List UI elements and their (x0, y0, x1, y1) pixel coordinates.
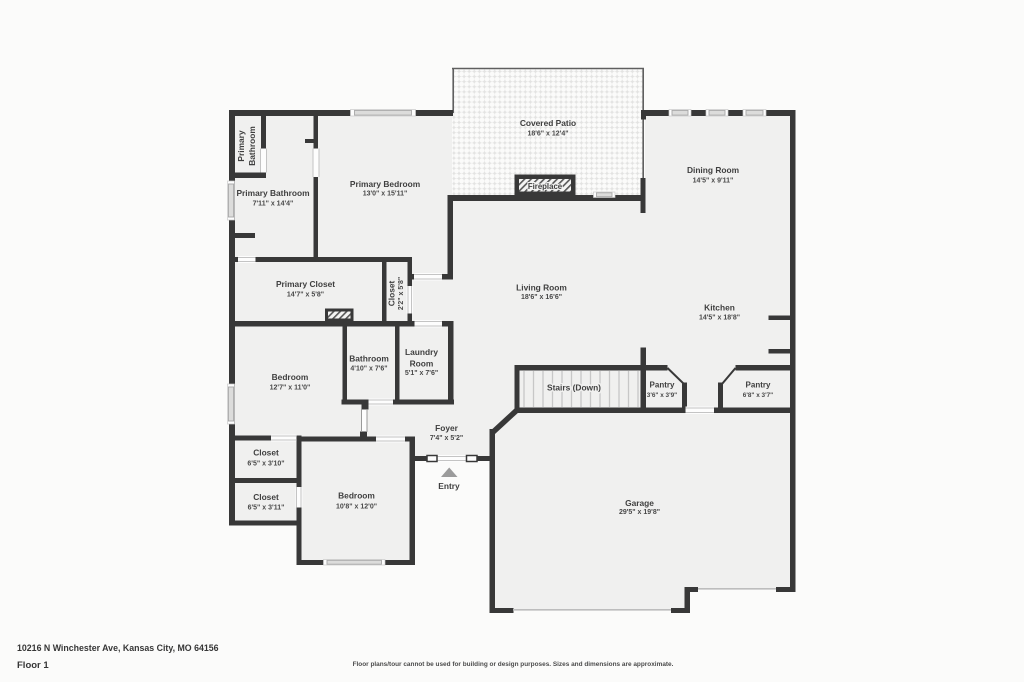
svg-text:7'11" x 14'4": 7'11" x 14'4" (253, 201, 294, 208)
svg-text:6'5" x 3'10": 6'5" x 3'10" (247, 461, 284, 468)
svg-text:Stairs (Down): Stairs (Down) (547, 383, 601, 393)
svg-text:2'2" x 5'8": 2'2" x 5'8" (398, 277, 405, 310)
svg-text:Closet: Closet (387, 280, 397, 306)
svg-text:29'5" x 19'8": 29'5" x 19'8" (619, 509, 660, 516)
svg-text:3'6" x 3'9": 3'6" x 3'9" (647, 392, 677, 399)
svg-text:Room: Room (410, 359, 434, 369)
svg-text:18'6" x 12'4": 18'6" x 12'4" (527, 131, 568, 138)
svg-text:Primary Closet: Primary Closet (276, 279, 335, 289)
svg-text:14'7" x 5'8": 14'7" x 5'8" (287, 292, 324, 299)
svg-text:Covered Patio: Covered Patio (520, 118, 576, 128)
svg-text:13'0" x 15'11": 13'0" x 15'11" (363, 191, 408, 198)
svg-text:Fireplace: Fireplace (528, 182, 563, 191)
svg-text:Dining Room: Dining Room (687, 165, 739, 175)
svg-text:Primary Bedroom: Primary Bedroom (350, 179, 420, 189)
svg-text:Garage: Garage (625, 498, 654, 508)
svg-text:Floor 1: Floor 1 (17, 660, 49, 671)
svg-text:Pantry: Pantry (650, 381, 675, 390)
svg-text:Kitchen: Kitchen (704, 303, 735, 313)
svg-text:Floor plans/tour cannot be use: Floor plans/tour cannot be used for buil… (353, 661, 674, 668)
svg-text:14'5" x 9'11": 14'5" x 9'11" (693, 178, 734, 185)
svg-text:Foyer: Foyer (435, 423, 459, 433)
svg-text:6'5" x 3'11": 6'5" x 3'11" (248, 505, 285, 512)
svg-text:6'8" x 3'7": 6'8" x 3'7" (743, 392, 773, 399)
svg-text:Bedroom: Bedroom (338, 491, 375, 501)
svg-text:5'1" x 7'6": 5'1" x 7'6" (405, 370, 438, 377)
svg-text:14'5" x 18'8": 14'5" x 18'8" (699, 315, 740, 322)
svg-text:Closet: Closet (253, 448, 279, 458)
svg-text:Living Room: Living Room (516, 283, 567, 293)
svg-text:Entry: Entry (438, 481, 460, 491)
svg-text:10216 N Winchester Ave, Kansas: 10216 N Winchester Ave, Kansas City, MO … (17, 643, 219, 653)
svg-text:7'4" x 5'2": 7'4" x 5'2" (430, 435, 463, 442)
svg-text:10'8" x 12'0": 10'8" x 12'0" (336, 504, 377, 511)
svg-text:Laundry: Laundry (405, 347, 438, 357)
svg-text:18'6" x 16'6": 18'6" x 16'6" (521, 294, 562, 301)
svg-text:Primary Bathroom: Primary Bathroom (236, 188, 309, 198)
svg-text:Pantry: Pantry (746, 381, 771, 390)
svg-text:Bathroom: Bathroom (349, 354, 389, 364)
svg-text:Primary: Primary (236, 130, 246, 162)
svg-text:12'7" x 11'0": 12'7" x 11'0" (270, 385, 311, 392)
svg-text:Closet: Closet (253, 492, 279, 502)
svg-text:Bathroom: Bathroom (247, 126, 257, 166)
svg-text:Bedroom: Bedroom (272, 372, 309, 382)
svg-text:4'10" x 7'6": 4'10" x 7'6" (350, 366, 387, 373)
